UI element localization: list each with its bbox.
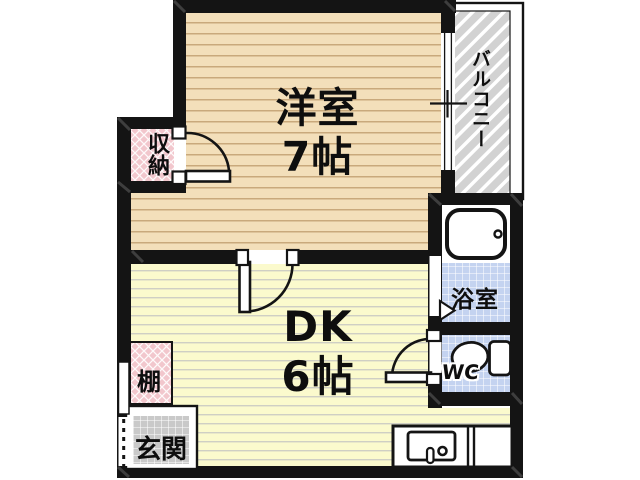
label-entrance: 玄関 — [130, 429, 192, 466]
label-dining-kitchen: DK 6帖 — [238, 302, 398, 402]
western-room-size: 7帖 — [235, 133, 400, 182]
label-western-room: 洋室 7帖 — [235, 84, 400, 182]
label-balcony: バルコニー — [467, 49, 494, 209]
label-bathroom: 浴室 — [443, 280, 507, 314]
label-storage: 収納 — [140, 132, 172, 184]
kitchen-counter — [393, 426, 512, 467]
floor-plan-drawing — [0, 0, 640, 480]
dk-name: DK — [238, 302, 398, 352]
dk-size: 6帖 — [238, 352, 398, 402]
bathtub — [442, 205, 510, 263]
label-shelf: 棚 — [137, 362, 161, 397]
floor-plan: 洋室 7帖 DK 6帖 バルコニー 収納 棚 玄関 浴室 WC — [0, 0, 640, 480]
tub-drain — [495, 231, 502, 238]
label-wc: WC — [441, 360, 480, 384]
left-wall-window — [119, 362, 130, 414]
entry-wall-openings — [119, 362, 130, 466]
faucet-stem — [427, 448, 434, 463]
western-room-name: 洋室 — [235, 84, 400, 133]
faucet-knob — [439, 447, 447, 455]
